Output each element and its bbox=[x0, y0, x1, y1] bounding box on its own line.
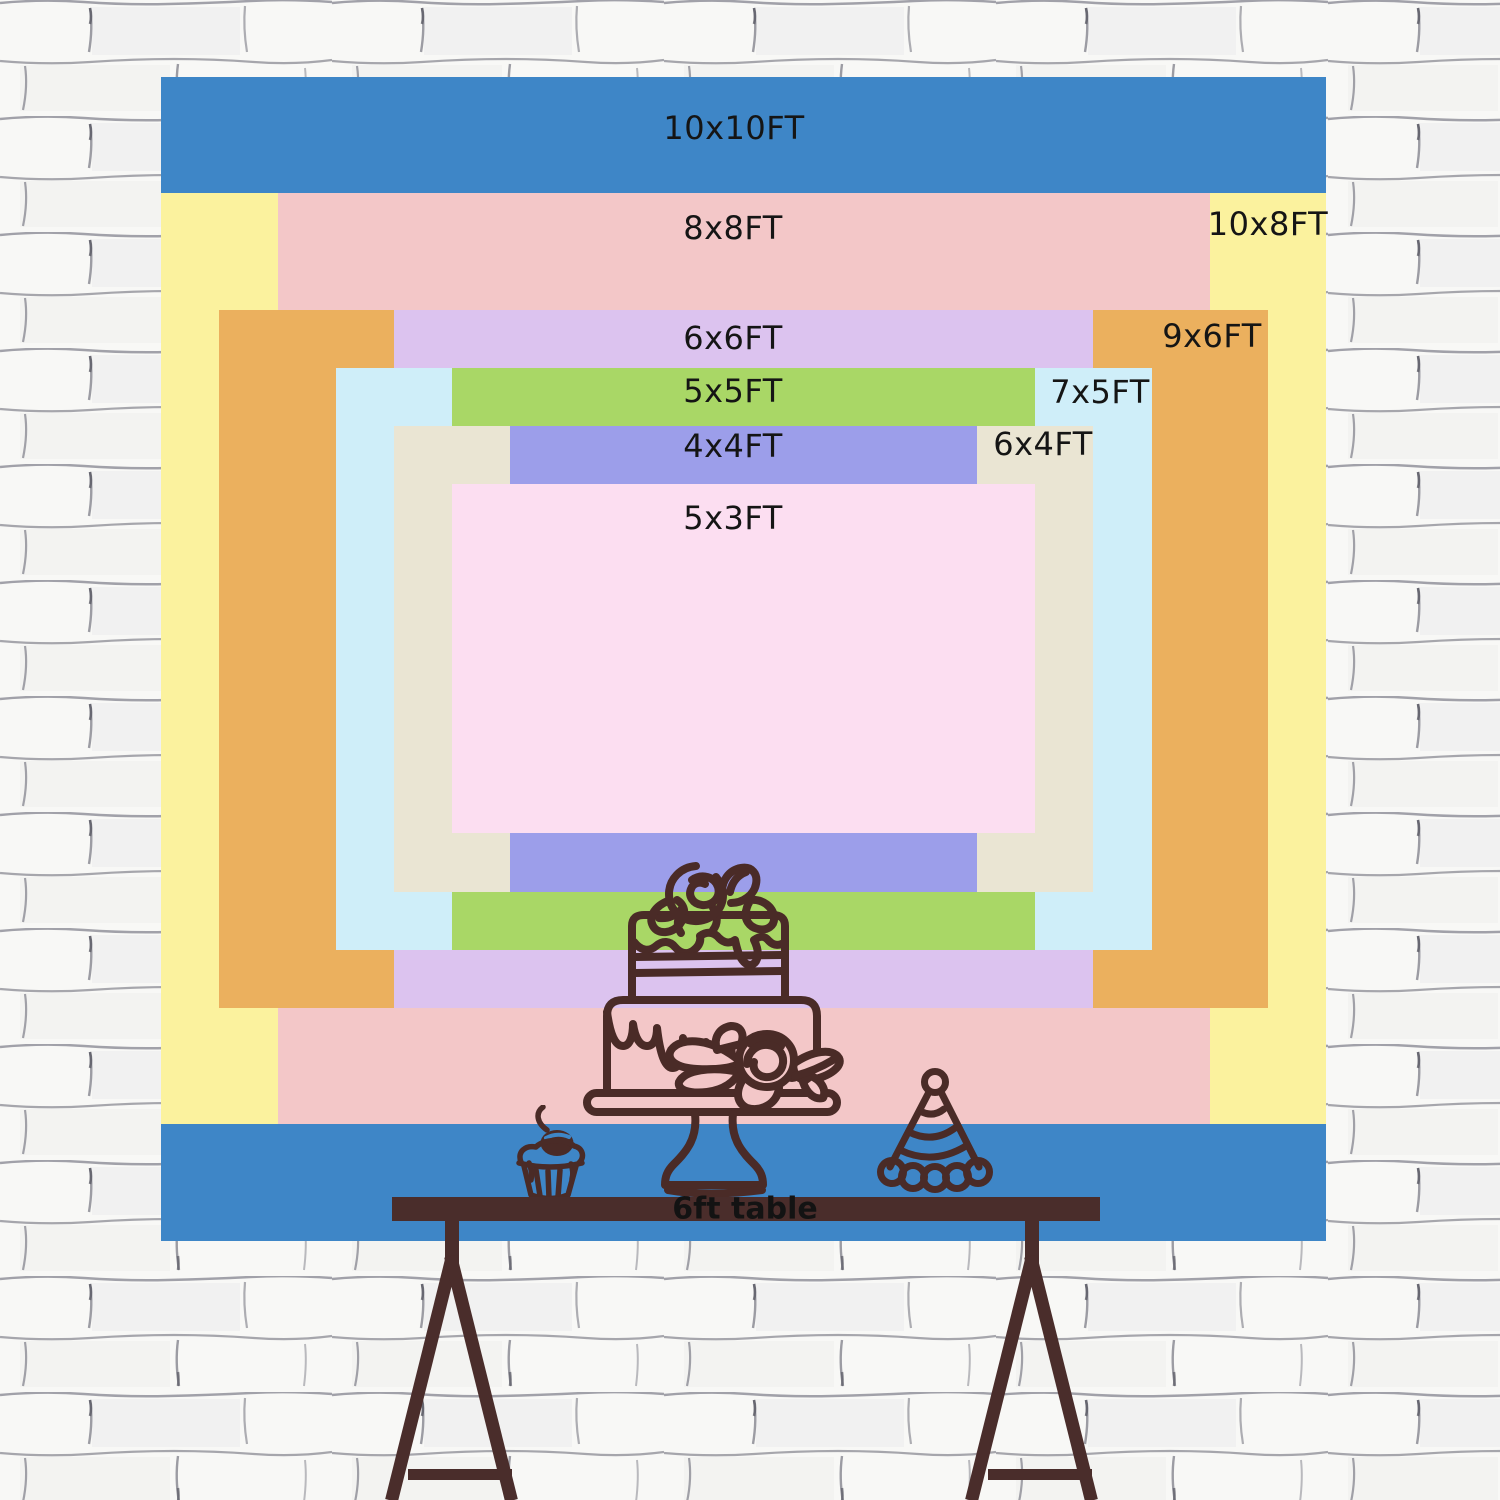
size-label-5x5ft: 5x5FT bbox=[683, 372, 783, 410]
size-label-6x4ft: 6x4FT bbox=[993, 425, 1093, 463]
cupcake-icon bbox=[505, 1105, 595, 1200]
size-label-5x3ft: 5x3FT bbox=[683, 499, 783, 537]
size-label-8x8ft: 8x8FT bbox=[683, 209, 783, 247]
size-label-4x4ft: 4x4FT bbox=[683, 427, 783, 465]
party-hat-icon bbox=[875, 1065, 995, 1195]
size-label-7x5ft: 7x5FT bbox=[1050, 373, 1150, 411]
size-label-10x8ft: 10x8FT bbox=[1208, 205, 1328, 243]
table-crossbar-right bbox=[988, 1469, 1092, 1480]
table-label: 6ft table bbox=[672, 1192, 817, 1227]
size-label-6x6ft: 6x6FT bbox=[683, 319, 783, 357]
size-label-10x10ft: 10x10FT bbox=[663, 109, 804, 147]
backdrop-size-chart: 10x10FT 8x8FT 10x8FT 6x6FT 9x6FT 5x5FT 7… bbox=[0, 0, 1500, 1500]
table-crossbar-left bbox=[408, 1469, 512, 1480]
tiered-cake-icon bbox=[555, 850, 855, 1200]
size-label-9x6ft: 9x6FT bbox=[1162, 317, 1262, 355]
